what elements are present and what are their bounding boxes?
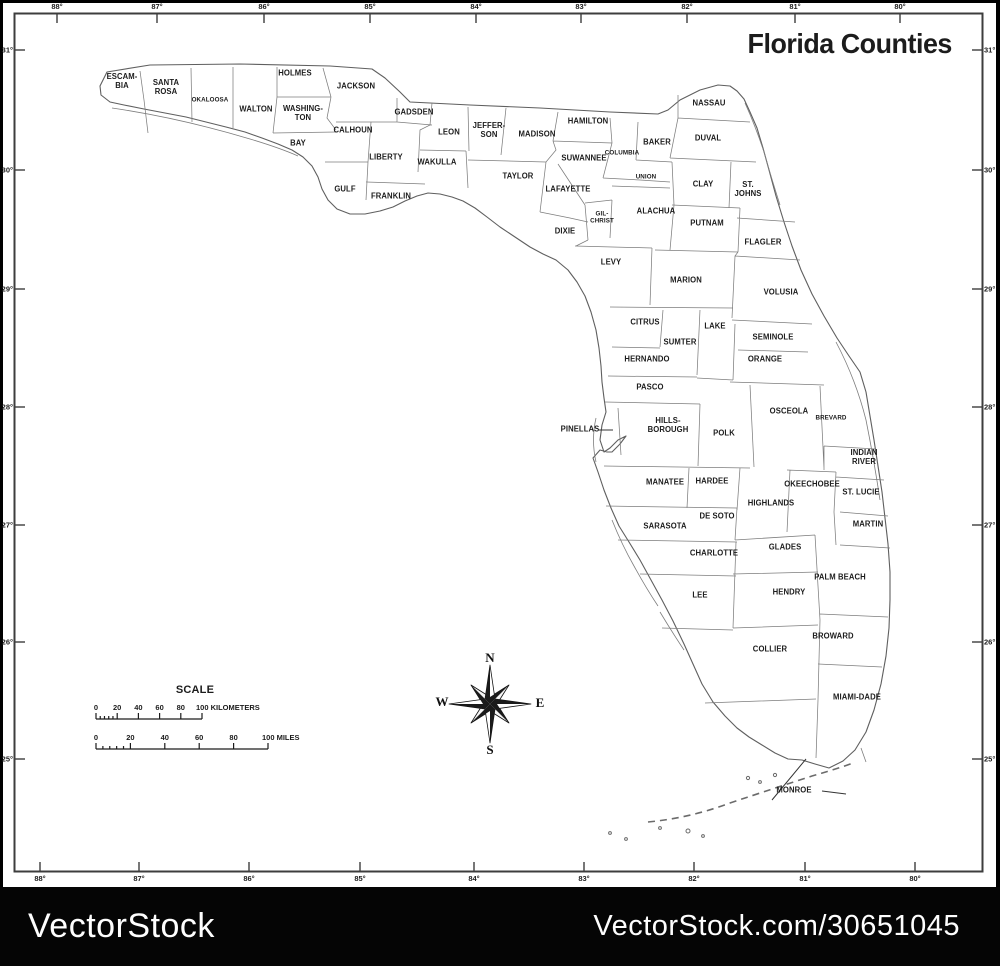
county-label-indian-river: INDIAN RIVER — [850, 449, 877, 467]
county-label-sarasota: SARASOTA — [643, 523, 686, 532]
county-label-nassau: NASSAU — [692, 100, 725, 109]
county-label-osceola: OSCEOLA — [770, 408, 809, 417]
county-label-polk: POLK — [713, 430, 735, 439]
lon-label-bottom-4: 84° — [468, 874, 479, 883]
county-label-manatee: MANATEE — [646, 479, 684, 488]
lon-label-top-6: 82° — [681, 2, 692, 11]
lat-label-left-2: 29° — [0, 285, 13, 294]
watermark-brand: VectorStock — [28, 907, 215, 946]
lat-label-right-0: 31° — [984, 46, 1000, 55]
lat-label-left-5: 26° — [0, 638, 13, 647]
scale-km-tick-3: 60 — [155, 703, 163, 712]
lat-label-left-3: 28° — [0, 403, 13, 412]
scale-mi-end-label: 100 MILES — [262, 733, 300, 742]
lon-label-bottom-8: 80° — [909, 874, 920, 883]
lon-label-top-8: 80° — [894, 2, 905, 11]
county-label-okaloosa: OKALOOSA — [192, 96, 229, 103]
graticule-ticks — [15, 14, 982, 871]
stock-map-image: Florida Counties ESCAM- BIASANTA ROSAOKA… — [0, 0, 1000, 966]
lon-label-top-3: 85° — [364, 2, 375, 11]
lat-label-right-2: 29° — [984, 285, 1000, 294]
lon-label-bottom-6: 82° — [688, 874, 699, 883]
lon-label-bottom-5: 83° — [578, 874, 589, 883]
county-label-charlotte: CHARLOTTE — [690, 550, 738, 559]
county-label-liberty: LIBERTY — [369, 154, 403, 163]
lon-label-bottom-1: 87° — [133, 874, 144, 883]
lon-label-bottom-3: 85° — [354, 874, 365, 883]
scale-heading: SCALE — [155, 684, 235, 696]
map-svg — [0, 0, 1000, 966]
county-label-taylor: TAYLOR — [503, 173, 534, 182]
lon-label-top-7: 81° — [789, 2, 800, 11]
county-label-hendry: HENDRY — [773, 589, 806, 598]
lon-label-top-4: 84° — [470, 2, 481, 11]
county-label-palm-beach: PALM BEACH — [814, 574, 866, 583]
county-label-hills-borough: HILLS- BOROUGH — [648, 417, 689, 435]
lon-label-top-1: 87° — [151, 2, 162, 11]
county-label-volusia: VOLUSIA — [764, 289, 799, 298]
watermark-bar: VectorStock VectorStock.com/30651045 — [0, 887, 1000, 966]
county-label-lee: LEE — [692, 592, 707, 601]
scale-km-tick-2: 40 — [134, 703, 142, 712]
lat-label-left-6: 25° — [0, 755, 13, 764]
scale-bars — [96, 713, 268, 749]
compass-south-label: S — [486, 742, 493, 758]
scale-km-tick-0: 0 — [94, 703, 98, 712]
county-label-leon: LEON — [438, 129, 460, 138]
lat-label-left-4: 27° — [0, 521, 13, 530]
barrier-islands — [112, 103, 880, 762]
county-label-marion: MARION — [670, 277, 702, 286]
county-label-union: UNION — [636, 173, 657, 180]
scale-km-end-label: 100 KILOMETERS — [196, 703, 260, 712]
compass-north-label: N — [485, 650, 494, 666]
county-label-madison: MADISON — [519, 131, 556, 140]
lon-label-top-2: 86° — [258, 2, 269, 11]
lat-label-right-1: 30° — [984, 166, 1000, 175]
county-label-holmes: HOLMES — [278, 70, 311, 79]
county-label-glades: GLADES — [769, 544, 802, 553]
county-label-highlands: HIGHLANDS — [748, 500, 795, 509]
compass-west-label: W — [436, 694, 449, 710]
map-neatline — [15, 14, 983, 872]
county-label-flagler: FLAGLER — [745, 239, 782, 248]
county-label-gadsden: GADSDEN — [394, 109, 433, 118]
lat-label-left-1: 30° — [0, 166, 13, 175]
county-label-monroe: MONROE — [776, 787, 811, 796]
scale-mi-tick-3: 60 — [195, 733, 203, 742]
scale-mi-tick-2: 40 — [161, 733, 169, 742]
county-label-brevard: BREVARD — [815, 414, 846, 421]
county-label-orange: ORANGE — [748, 356, 782, 365]
county-label-columbia: COLUMBIA — [605, 149, 639, 156]
county-label-escam-bia: ESCAM- BIA — [107, 73, 138, 91]
county-label-broward: BROWARD — [812, 633, 853, 642]
county-label-pasco: PASCO — [636, 384, 663, 393]
county-label-clay: CLAY — [693, 181, 714, 190]
lon-label-bottom-2: 86° — [243, 874, 254, 883]
county-label-st-johns: ST. JOHNS — [735, 181, 762, 199]
county-label-dixie: DIXIE — [555, 228, 576, 237]
county-label-hamilton: HAMILTON — [568, 118, 609, 127]
county-label-putnam: PUTNAM — [690, 220, 723, 229]
county-label-okeechobee: OKEECHOBEE — [784, 481, 840, 490]
county-label-alachua: ALACHUA — [637, 208, 676, 217]
lat-label-left-0: 31° — [0, 46, 13, 55]
county-label-santa-rosa: SANTA ROSA — [153, 79, 179, 97]
monroe-leader-line-keys — [822, 791, 846, 794]
county-label-lake: LAKE — [704, 323, 725, 332]
county-label-levy: LEVY — [601, 259, 621, 268]
county-label-hernando: HERNANDO — [624, 356, 669, 365]
county-label-washing-ton: WASHING- TON — [283, 105, 323, 123]
county-label-hardee: HARDEE — [695, 478, 728, 487]
florida-keys — [609, 763, 853, 840]
county-label-sumter: SUMTER — [663, 339, 696, 348]
county-label-lafayette: LAFAYETTE — [546, 186, 591, 195]
county-label-miami-dade: MIAMI-DADE — [833, 694, 881, 703]
county-label-citrus: CITRUS — [630, 319, 659, 328]
lon-label-bottom-0: 88° — [34, 874, 45, 883]
county-label-de-soto: DE SOTO — [699, 513, 734, 522]
lon-label-bottom-7: 81° — [799, 874, 810, 883]
county-label-bay: BAY — [290, 140, 306, 149]
lon-label-top-5: 83° — [575, 2, 586, 11]
lat-label-right-5: 26° — [984, 638, 1000, 647]
scale-mi-tick-1: 20 — [126, 733, 134, 742]
county-label-martin: MARTIN — [853, 521, 883, 530]
county-label-gil-christ: GIL- CHRIST — [590, 211, 614, 226]
page-title: Florida Counties — [748, 28, 952, 60]
scale-km-tick-1: 20 — [113, 703, 121, 712]
county-label-baker: BAKER — [643, 139, 671, 148]
compass-east-label: E — [536, 695, 545, 711]
county-label-st-lucie: ST. LUCIE — [842, 489, 879, 498]
lat-label-right-3: 28° — [984, 403, 1000, 412]
lat-label-right-6: 25° — [984, 755, 1000, 764]
image-border-top — [0, 0, 1000, 3]
county-label-suwannee: SUWANNEE — [561, 155, 606, 164]
lat-label-right-4: 27° — [984, 521, 1000, 530]
county-label-collier: COLLIER — [753, 646, 787, 655]
scale-mi-tick-0: 0 — [94, 733, 98, 742]
county-label-gulf: GULF — [334, 186, 355, 195]
county-label-franklin: FRANKLIN — [371, 193, 411, 202]
county-label-duval: DUVAL — [695, 135, 721, 144]
scale-km-tick-4: 80 — [177, 703, 185, 712]
county-label-wakulla: WAKULLA — [417, 159, 456, 168]
county-label-walton: WALTON — [239, 106, 272, 115]
compass-rose — [449, 665, 531, 743]
county-label-jeffer-son: JEFFER- SON — [473, 122, 506, 140]
lon-label-top-0: 88° — [51, 2, 62, 11]
scale-mi-tick-4: 80 — [229, 733, 237, 742]
county-label-calhoun: CALHOUN — [333, 127, 372, 136]
county-label-seminole: SEMINOLE — [753, 334, 794, 343]
watermark-credit: VectorStock.com/30651045 — [593, 910, 960, 943]
county-label-jackson: JACKSON — [337, 83, 375, 92]
county-label-pinellas: PINELLAS — [561, 426, 600, 435]
